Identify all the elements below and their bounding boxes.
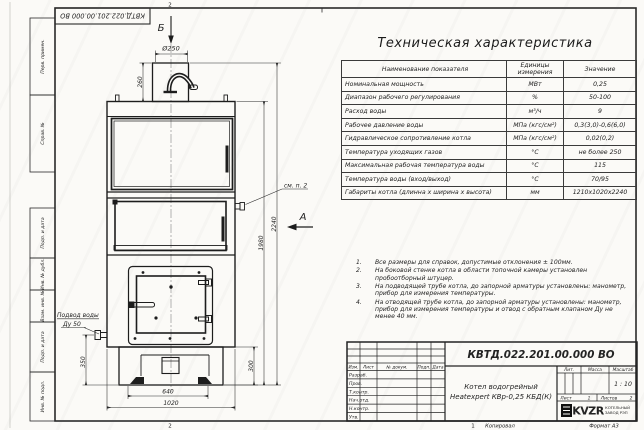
sheet-label: Лист bbox=[559, 395, 572, 401]
water-inlet-stub bbox=[95, 331, 107, 340]
sheet-value: 1 bbox=[588, 395, 591, 401]
water-inlet-label-line1: Подвод воды bbox=[57, 312, 99, 319]
col-podp: Подп. bbox=[417, 365, 430, 371]
mass-label: Масса bbox=[588, 367, 602, 373]
zone-number-top: 2 bbox=[168, 3, 172, 9]
margin-label: Перв. примен. bbox=[40, 39, 46, 74]
furnace-door bbox=[129, 267, 213, 345]
margin-label: Инв. № дубл. bbox=[40, 258, 46, 289]
chimney bbox=[153, 63, 198, 102]
dim-inlet-height: 350 bbox=[80, 356, 87, 368]
table-row: Диапазон рабочего регулирования % 50-100 bbox=[342, 91, 637, 105]
dim-body-height: 1980 bbox=[258, 235, 265, 250]
col-data: Дата bbox=[431, 365, 443, 371]
lifting-lug bbox=[224, 95, 228, 102]
note-text: На боковой стенке котла в области топочн… bbox=[369, 267, 634, 282]
col-izm: Изм. bbox=[348, 365, 358, 371]
dim-total-height: 2240 bbox=[271, 216, 278, 231]
callout-water-inlet: Подвод воды Ду 50 bbox=[57, 312, 99, 328]
row-name: Температура воды (вход/выход) bbox=[342, 173, 507, 187]
lifting-lug bbox=[116, 95, 120, 102]
drawing-sheet: Перв. примен. Справ. № Подп. и дата Инв.… bbox=[0, 0, 644, 430]
product-name-line2: Heatexpert КВр-0,25 КБД(К) bbox=[450, 393, 552, 401]
row-name: Рабочее давление воды bbox=[342, 118, 507, 132]
row-name: Гидравлическое сопротивление котла bbox=[342, 132, 507, 146]
dim-chimney-diameter: Ø250 bbox=[161, 45, 180, 53]
scale-value: 1 : 10 bbox=[614, 381, 632, 388]
row-value: 115 bbox=[564, 159, 637, 173]
kvzr-logo-text: KVZR bbox=[572, 405, 605, 418]
row-value: 1210х1020х2240 bbox=[564, 186, 637, 200]
top-stamp: КВТД.022.201.00.000 ВО bbox=[55, 8, 150, 24]
view-a-label: А bbox=[299, 212, 307, 223]
notes-list: 1. Все размеры для справок, допустимые о… bbox=[352, 259, 634, 322]
table-row: Рабочее давление воды МПа (кгс/см²) 0,3(… bbox=[342, 118, 637, 132]
view-b-label: Б bbox=[158, 23, 165, 34]
table-row: Номинальная мощность МВт 0,25 bbox=[342, 78, 637, 92]
row-unit: МПа (кгс/см²) bbox=[507, 118, 564, 132]
note-text: На отводящей трубе котла, до запорной ар… bbox=[369, 299, 634, 321]
kvzr-logo-sub2: ЗАВОД РЭП bbox=[605, 410, 628, 415]
table-row: Расход воды м³/ч 9 bbox=[342, 105, 637, 119]
product-name-line1: Котел водогрейный bbox=[464, 383, 538, 391]
dim-base-height: 300 bbox=[248, 360, 255, 372]
table-row: Температура воды (вход/выход) °С 70/95 bbox=[342, 173, 637, 187]
dim-chimney-height: 260 bbox=[137, 76, 144, 88]
row-unit: °С bbox=[507, 145, 564, 159]
dimension-labels: Ø250 260 350 300 640 1020 1980 2240 bbox=[80, 45, 278, 408]
table-row: Габариты котла (длинна х ширина х высота… bbox=[342, 186, 637, 200]
list-item: 2. На боковой стенке котла в области топ… bbox=[352, 267, 634, 282]
sheets-value: 2 bbox=[630, 395, 633, 401]
door-bolts bbox=[134, 271, 206, 340]
row-name: Габариты котла (длинна х ширина х высота… bbox=[342, 186, 507, 200]
middle-door-handle bbox=[222, 217, 225, 242]
row-nkontr: Н.контр. bbox=[349, 406, 370, 412]
row-razrab: Разраб. bbox=[349, 373, 367, 379]
row-value: 9 bbox=[564, 105, 637, 119]
ash-hatch bbox=[162, 358, 179, 374]
row-name: Максимальная рабочая температура воды bbox=[342, 159, 507, 173]
dim-body-width: 1020 bbox=[163, 400, 178, 407]
row-unit: МВт bbox=[507, 78, 564, 92]
table-row: Максимальная рабочая температура воды °С… bbox=[342, 159, 637, 173]
header-units: Единицы измерения bbox=[507, 61, 564, 78]
title-block-text: КВТД.022.201.00.000 ВО Котел водогрейный… bbox=[348, 349, 633, 421]
margin-label: Инв. № подл. bbox=[40, 381, 46, 413]
list-item: 1. Все размеры для справок, допустимые о… bbox=[352, 259, 634, 266]
row-name: Диапазон рабочего регулирования bbox=[342, 91, 507, 105]
lit-label: Лит. bbox=[563, 367, 574, 373]
callout-fitting-label: см. п. 2 bbox=[284, 183, 307, 190]
spec-table-header-row: Наименование показателя Единицы измерени… bbox=[342, 61, 637, 78]
header-value: Значение bbox=[564, 61, 637, 78]
row-utv: Утв. bbox=[349, 415, 359, 421]
margin-label: Подп. и дата bbox=[40, 331, 46, 362]
row-tkontr: Т.контр. bbox=[349, 389, 369, 395]
spec-table: Наименование показателя Единицы измерени… bbox=[341, 60, 637, 200]
row-nachotd: Нач.отд. bbox=[349, 398, 370, 404]
note-number: 1. bbox=[352, 259, 369, 266]
middle-door bbox=[113, 200, 228, 251]
view-b-arrow bbox=[168, 16, 174, 44]
water-inlet-label-line2: Ду 50 bbox=[62, 321, 81, 328]
view-a-arrow bbox=[287, 224, 313, 231]
row-unit: мм bbox=[507, 186, 564, 200]
side-fitting bbox=[235, 203, 245, 211]
upper-door-handle bbox=[226, 146, 229, 173]
kvzr-logo: KVZR КОТЕЛЬНЫЙ ЗАВОД РЭП bbox=[561, 404, 630, 418]
row-unit: °С bbox=[507, 159, 564, 173]
table-row: Температура уходящих газов °С не более 2… bbox=[342, 145, 637, 159]
margin-label: Взам. инв. № bbox=[40, 290, 46, 321]
note-number: 3. bbox=[352, 283, 369, 298]
row-unit: °С bbox=[507, 173, 564, 187]
list-item: 4. На отводящей трубе котла, до запорной… bbox=[352, 299, 634, 321]
row-value: 0,25 bbox=[564, 78, 637, 92]
note-text: Все размеры для справок, допустимые откл… bbox=[369, 259, 634, 266]
margin-label: Справ. № bbox=[40, 122, 46, 145]
spec-table-title: Техническая характеристика bbox=[341, 36, 629, 51]
row-value: не более 250 bbox=[564, 145, 637, 159]
doc-number: КВТД.022.201.00.000 ВО bbox=[467, 349, 614, 361]
header-name: Наименование показателя bbox=[342, 61, 507, 78]
row-unit: % bbox=[507, 91, 564, 105]
dim-base-width: 640 bbox=[162, 389, 174, 396]
boiler-front-view bbox=[95, 16, 245, 392]
upper-door bbox=[112, 119, 233, 190]
row-value: 50-100 bbox=[564, 91, 637, 105]
zone-number-bottom: 2 bbox=[168, 424, 172, 430]
format-label: Формат А3 bbox=[589, 424, 619, 430]
zone-number-bottom-right: 1 bbox=[471, 424, 475, 430]
row-value: 0,3(3,0)-0,6(6,0) bbox=[564, 118, 637, 132]
note-number: 4. bbox=[352, 299, 369, 321]
row-unit: МПа (кгс/см²) bbox=[507, 132, 564, 146]
copied-label: Копировал bbox=[485, 424, 515, 430]
list-item: 3. На подводящей трубе котла, до запорно… bbox=[352, 283, 634, 298]
sheets-label: Листов bbox=[600, 395, 618, 401]
col-list: Лист bbox=[362, 365, 374, 371]
row-name: Номинальная мощность bbox=[342, 78, 507, 92]
scale-label: Масштаб bbox=[613, 367, 634, 373]
margin-label: Подп. и дата bbox=[40, 217, 46, 248]
col-docum: № докум. bbox=[385, 365, 407, 371]
table-row: Гидравлическое сопротивление котла МПа (… bbox=[342, 132, 637, 146]
row-value: 70/95 bbox=[564, 173, 637, 187]
note-text: На подводящей трубе котла, до запорной а… bbox=[369, 283, 634, 298]
row-value: 0,02(0,2) bbox=[564, 132, 637, 146]
row-name: Расход воды bbox=[342, 105, 507, 119]
row-unit: м³/ч bbox=[507, 105, 564, 119]
row-prov: Пров. bbox=[349, 381, 362, 387]
row-name: Температура уходящих газов bbox=[342, 145, 507, 159]
note-number: 2. bbox=[352, 267, 369, 282]
top-stamp-number: КВТД.022.201.00.000 ВО bbox=[60, 11, 145, 19]
